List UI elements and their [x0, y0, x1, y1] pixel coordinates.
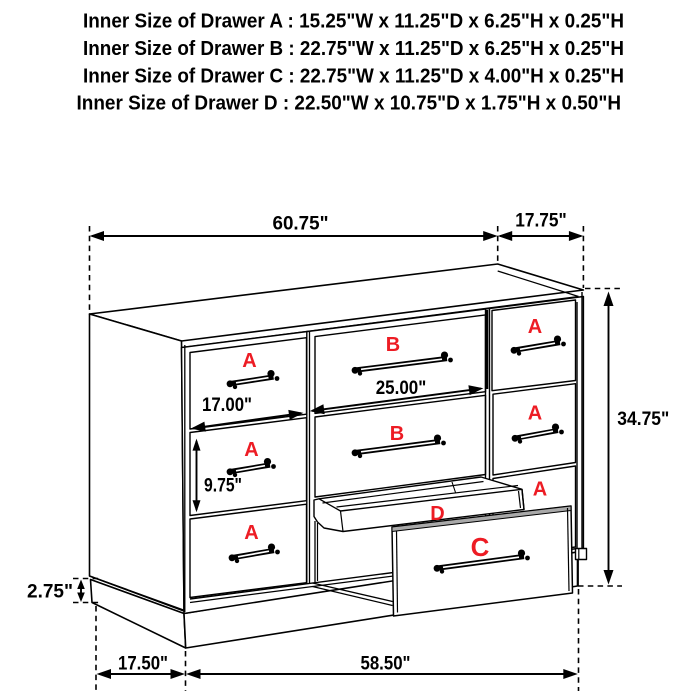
svg-text:A: A	[244, 439, 258, 461]
svg-text:B: B	[390, 423, 404, 445]
svg-text:C: C	[471, 532, 490, 562]
svg-text:A: A	[528, 403, 542, 425]
svg-text:Inner Size of Drawer D : 22.5: Inner Size of Drawer D : 22.50"W x 10.75…	[77, 93, 622, 115]
svg-text:25.00": 25.00"	[376, 377, 427, 399]
svg-text:Inner Size of Drawer B : 22.75: Inner Size of Drawer B : 22.75"W x 11.25…	[83, 38, 624, 60]
svg-text:A: A	[533, 479, 547, 501]
svg-text:60.75": 60.75"	[273, 213, 329, 235]
svg-text:17.50": 17.50"	[118, 653, 168, 675]
svg-text:A: A	[528, 316, 542, 338]
svg-text:Inner Size of Drawer C : 22.75: Inner Size of Drawer C : 22.75"W x 11.25…	[83, 65, 624, 87]
svg-text:34.75": 34.75"	[617, 408, 669, 430]
svg-text:2.75": 2.75"	[27, 581, 73, 603]
svg-text:9.75": 9.75"	[204, 475, 242, 497]
svg-text:B: B	[386, 334, 400, 356]
svg-text:A: A	[242, 350, 256, 372]
svg-text:58.50": 58.50"	[361, 653, 411, 675]
svg-text:A: A	[244, 522, 258, 544]
svg-text:17.75": 17.75"	[515, 210, 567, 232]
svg-text:17.00": 17.00"	[202, 394, 252, 416]
svg-text:Inner Size of Drawer A : 15.25: Inner Size of Drawer A : 15.25"W x 11.25…	[83, 11, 624, 33]
svg-text:D: D	[430, 503, 444, 525]
